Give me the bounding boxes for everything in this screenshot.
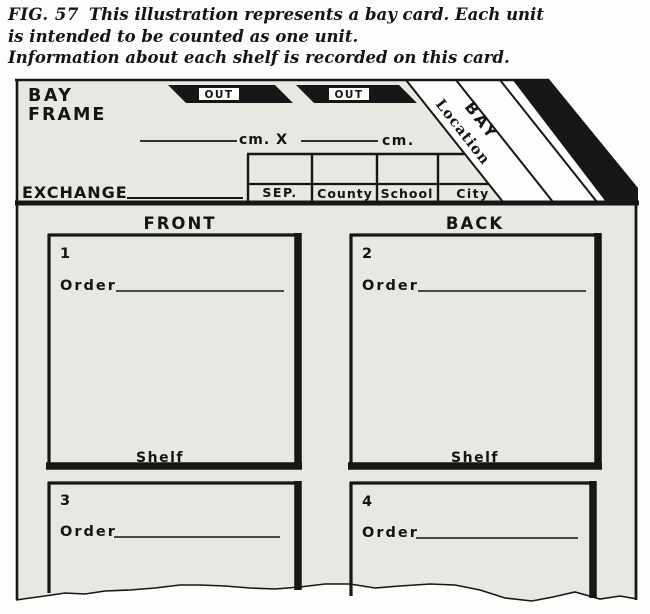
unit-1-shelf-label: Shelf	[136, 450, 184, 466]
dimension-separator: X	[276, 132, 287, 148]
back-section-heading: BACK	[446, 214, 504, 233]
out-tab-1-label: OUT	[204, 89, 233, 101]
exchange-label: EXCHANGE	[22, 183, 128, 202]
scanned-figure-page: FIG. 57This illustration represents a ba…	[0, 0, 650, 614]
unit-2-order-label: Order	[362, 278, 419, 294]
type-table-col-sep: SEP.	[262, 185, 297, 200]
out-tab-1: OUT	[168, 85, 293, 103]
bay-card-illustration: Location BAY BAY FRAME OUT OUT cm. X cm.…	[0, 0, 650, 614]
out-tab-2: OUT	[296, 85, 417, 103]
front-section-heading: FRONT	[143, 214, 216, 233]
type-table-col-city: City	[456, 186, 490, 201]
unit-1-order-label: Order	[60, 278, 117, 294]
unit-2-number: 2	[362, 246, 372, 262]
out-tab-2-label: OUT	[334, 89, 363, 101]
card-title-frame: FRAME	[28, 105, 106, 125]
unit-1-number: 1	[60, 246, 70, 262]
card-body-area	[16, 203, 637, 601]
corner-black-stripe	[512, 79, 638, 202]
unit-4-order-label: Order	[362, 525, 419, 541]
type-table-col-county: County	[317, 186, 373, 201]
unit-4-number: 4	[362, 494, 372, 510]
dimension-unit-1: cm.	[239, 132, 270, 148]
card-title-bay: BAY	[28, 86, 73, 106]
dimension-unit-2: cm.	[382, 133, 415, 149]
unit-3-number: 3	[60, 493, 70, 509]
unit-2-shelf-label: Shelf	[451, 450, 499, 466]
unit-3-order-label: Order	[60, 524, 117, 540]
type-table-col-school: School	[381, 186, 434, 201]
